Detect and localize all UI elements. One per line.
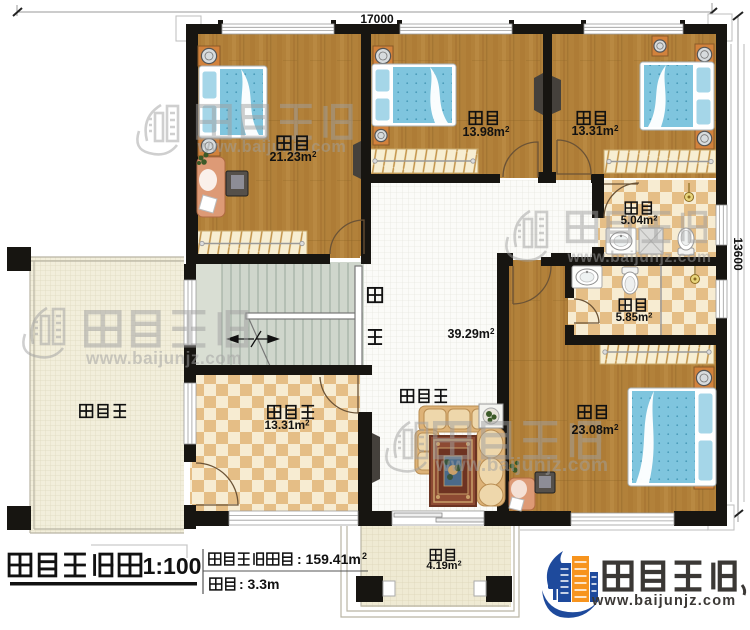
svg-text:13.31m2: 13.31m2 — [572, 124, 619, 138]
svg-text:: 159.41m: : 159.41m — [297, 551, 361, 567]
svg-text:www.baijunjz.com: www.baijunjz.com — [591, 593, 736, 609]
svg-text:23.08m2: 23.08m2 — [572, 423, 619, 437]
svg-text:39.29m2: 39.29m2 — [448, 327, 495, 341]
svg-text:4.19m2: 4.19m2 — [426, 559, 461, 572]
svg-text:www.baijunjz.com: www.baijunjz.com — [567, 249, 712, 266]
svg-text:13.98m2: 13.98m2 — [463, 125, 510, 139]
svg-text:5.04m2: 5.04m2 — [621, 214, 658, 227]
svg-text:13600: 13600 — [731, 237, 745, 271]
svg-text:5.85m2: 5.85m2 — [616, 311, 653, 324]
svg-text:13.31m2: 13.31m2 — [264, 418, 310, 432]
svg-text:17000: 17000 — [360, 12, 394, 26]
svg-text:: 3.3m: : 3.3m — [239, 576, 279, 592]
svg-text:2: 2 — [362, 551, 367, 561]
svg-text:www.baijunjz.com: www.baijunjz.com — [434, 455, 608, 476]
svg-text:www.baijunjz.com: www.baijunjz.com — [85, 348, 242, 368]
svg-text:21.23m2: 21.23m2 — [270, 150, 317, 164]
svg-text:1:100: 1:100 — [143, 553, 202, 579]
